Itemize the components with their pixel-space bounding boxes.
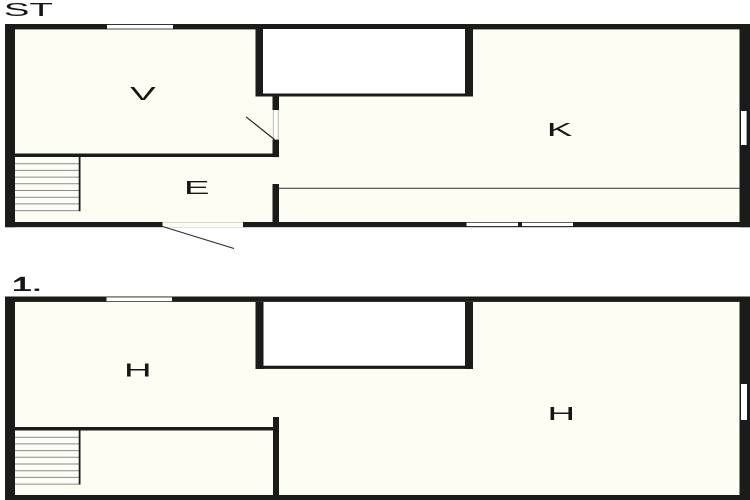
- svg-text:H: H: [547, 404, 575, 424]
- svg-text:V: V: [130, 84, 157, 104]
- svg-text:E: E: [184, 178, 210, 198]
- svg-text:H: H: [124, 361, 152, 381]
- svg-text:K: K: [547, 120, 573, 140]
- svg-text:ST: ST: [4, 0, 53, 20]
